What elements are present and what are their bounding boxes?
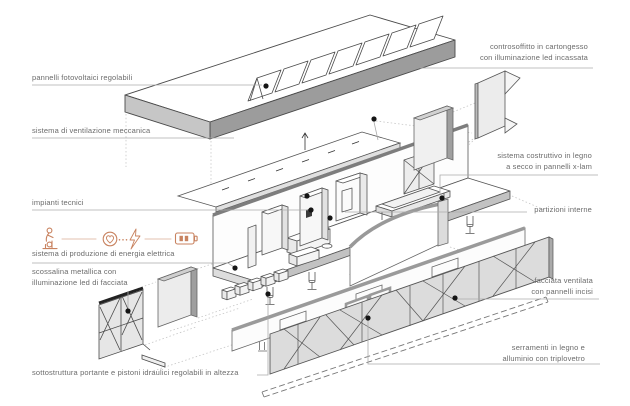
label-technical-systems: impianti tecnici xyxy=(32,197,84,208)
label-ventilated-facade: facciata ventilata con pannelli incisi xyxy=(531,275,593,297)
label-metal-flashing: scossalina metallica con illuminazione l… xyxy=(32,266,128,288)
pedal-generator-icon xyxy=(43,228,57,249)
label-photovoltaic-panels: pannelli fotovoltaici regolabili xyxy=(32,72,132,83)
label-xlam-structure: sistema costruttivo in legno a secco in … xyxy=(497,150,592,172)
heart-circle-icon xyxy=(103,232,117,246)
grey-panel-left xyxy=(158,267,197,327)
label-substructure: sottostruttura portante e pistoni idraul… xyxy=(32,367,239,378)
label-suspended-ceiling: controsoffitto in cartongesso con illumi… xyxy=(480,41,588,63)
energy-flow-icons xyxy=(43,228,197,249)
label-internal-partitions: partizioni interne xyxy=(534,204,592,215)
ellipsis-dots xyxy=(119,239,121,241)
bathroom-block xyxy=(336,173,367,221)
label-energy-production: sistema di produzione di energia elettri… xyxy=(32,248,175,259)
roof-photovoltaic-assembly xyxy=(125,15,455,139)
exploded-axonometric-diagram: pannelli fotovoltaici regolabili sistema… xyxy=(0,0,630,406)
ceiling-panel xyxy=(475,71,520,139)
label-window-frames: serramenti in legno e alluminio con trip… xyxy=(502,342,585,364)
base-plate xyxy=(142,355,165,367)
label-mechanical-ventilation: sistema di ventilazione meccanica xyxy=(32,125,150,136)
lightning-bolt-icon xyxy=(130,229,140,249)
flashing-led-panel xyxy=(99,288,165,367)
